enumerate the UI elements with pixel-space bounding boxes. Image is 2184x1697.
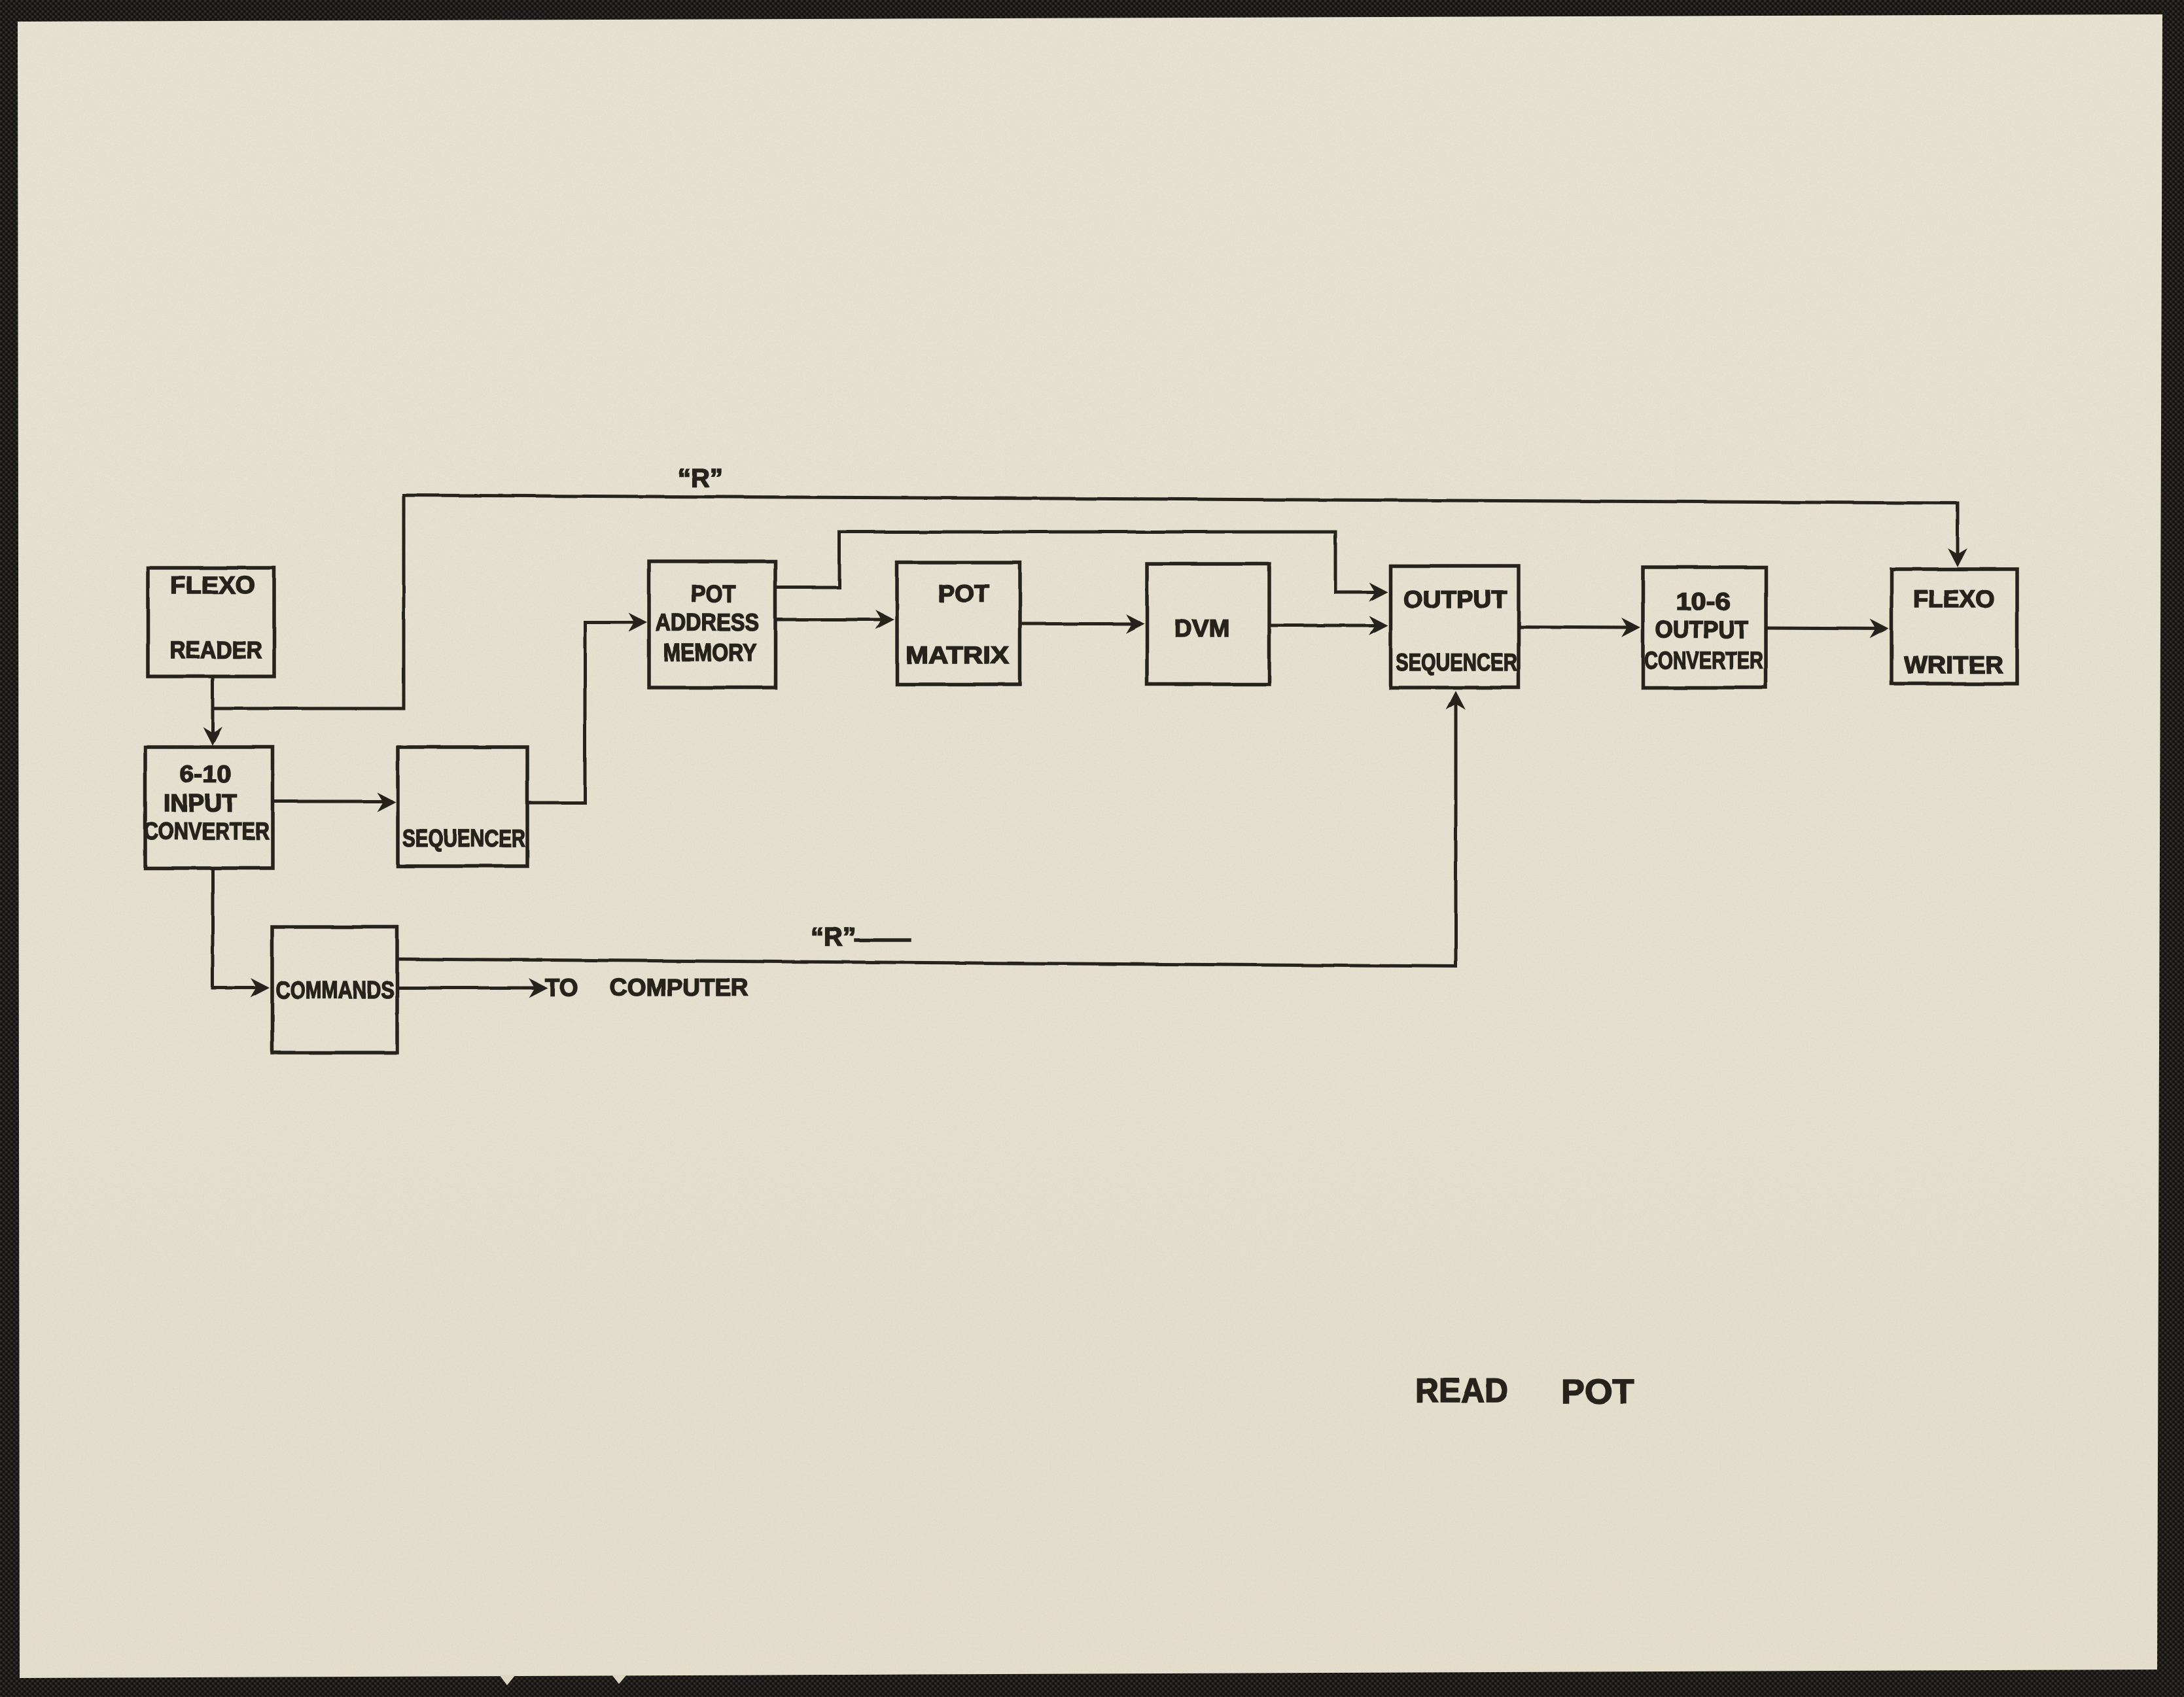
svg-text:SEQUENCER: SEQUENCER (402, 825, 525, 852)
svg-text:READER: READER (170, 637, 262, 663)
svg-text:COMPUTER: COMPUTER (610, 974, 749, 1001)
svg-text:POT: POT (1561, 1373, 1634, 1411)
svg-text:“R”: “R” (811, 923, 856, 952)
svg-text:READ: READ (1415, 1372, 1509, 1410)
svg-text:SEQUENCER: SEQUENCER (1396, 649, 1517, 676)
svg-text:WRITER: WRITER (1904, 652, 2003, 678)
svg-text:CONVERTER: CONVERTER (1644, 647, 1763, 674)
svg-text:DVM: DVM (1174, 615, 1230, 642)
svg-text:MATRIX: MATRIX (906, 642, 1009, 669)
svg-text:MEMORY: MEMORY (663, 639, 757, 666)
svg-text:POT: POT (938, 580, 990, 607)
svg-text:INPUT: INPUT (164, 790, 237, 816)
svg-text:ADDRESS: ADDRESS (656, 609, 759, 636)
svg-text:OUTPUT: OUTPUT (1403, 586, 1507, 613)
svg-text:OUTPUT: OUTPUT (1655, 616, 1748, 643)
svg-text:10-6: 10-6 (1676, 588, 1731, 615)
svg-text:“R”: “R” (678, 464, 723, 493)
svg-text:6-10: 6-10 (180, 761, 231, 788)
svg-text:FLEXO: FLEXO (1913, 586, 1994, 612)
svg-text:CONVERTER: CONVERTER (144, 818, 270, 845)
svg-text:POT: POT (691, 580, 735, 607)
svg-text:COMMANDS: COMMANDS (276, 977, 395, 1004)
svg-text:FLEXO: FLEXO (170, 572, 255, 599)
svg-text:TO: TO (545, 974, 578, 1001)
